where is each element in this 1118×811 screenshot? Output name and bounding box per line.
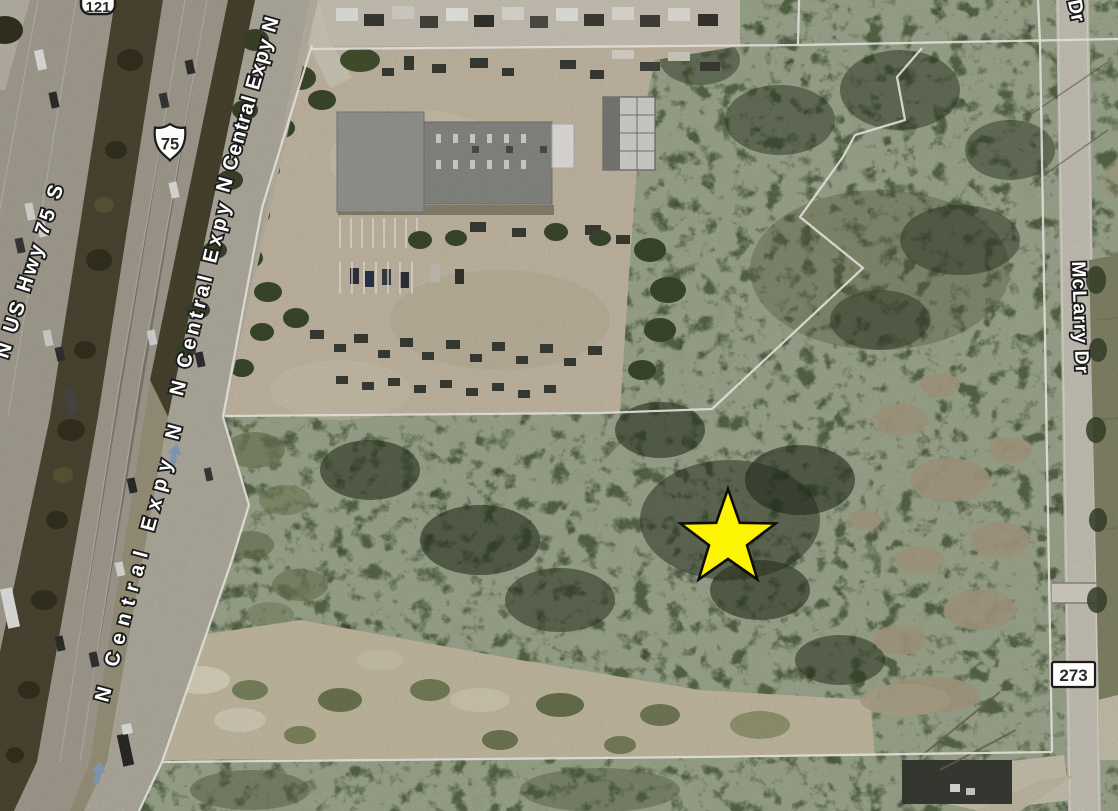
svg-text:273: 273 <box>1059 666 1087 685</box>
road-label-mclarry-dr: McLarry Dr <box>1067 261 1093 375</box>
satellite-map[interactable]: N US Hwy 75 S N Central Expy N N Central… <box>0 0 1118 811</box>
route-shield-121: 121 <box>81 0 115 16</box>
route-shield-273: 273 <box>1052 662 1095 687</box>
svg-text:75: 75 <box>161 136 179 154</box>
map-canvas: N US Hwy 75 S N Central Expy N N Central… <box>0 0 1118 811</box>
photo-grain <box>0 0 1118 811</box>
svg-text:121: 121 <box>85 0 110 16</box>
